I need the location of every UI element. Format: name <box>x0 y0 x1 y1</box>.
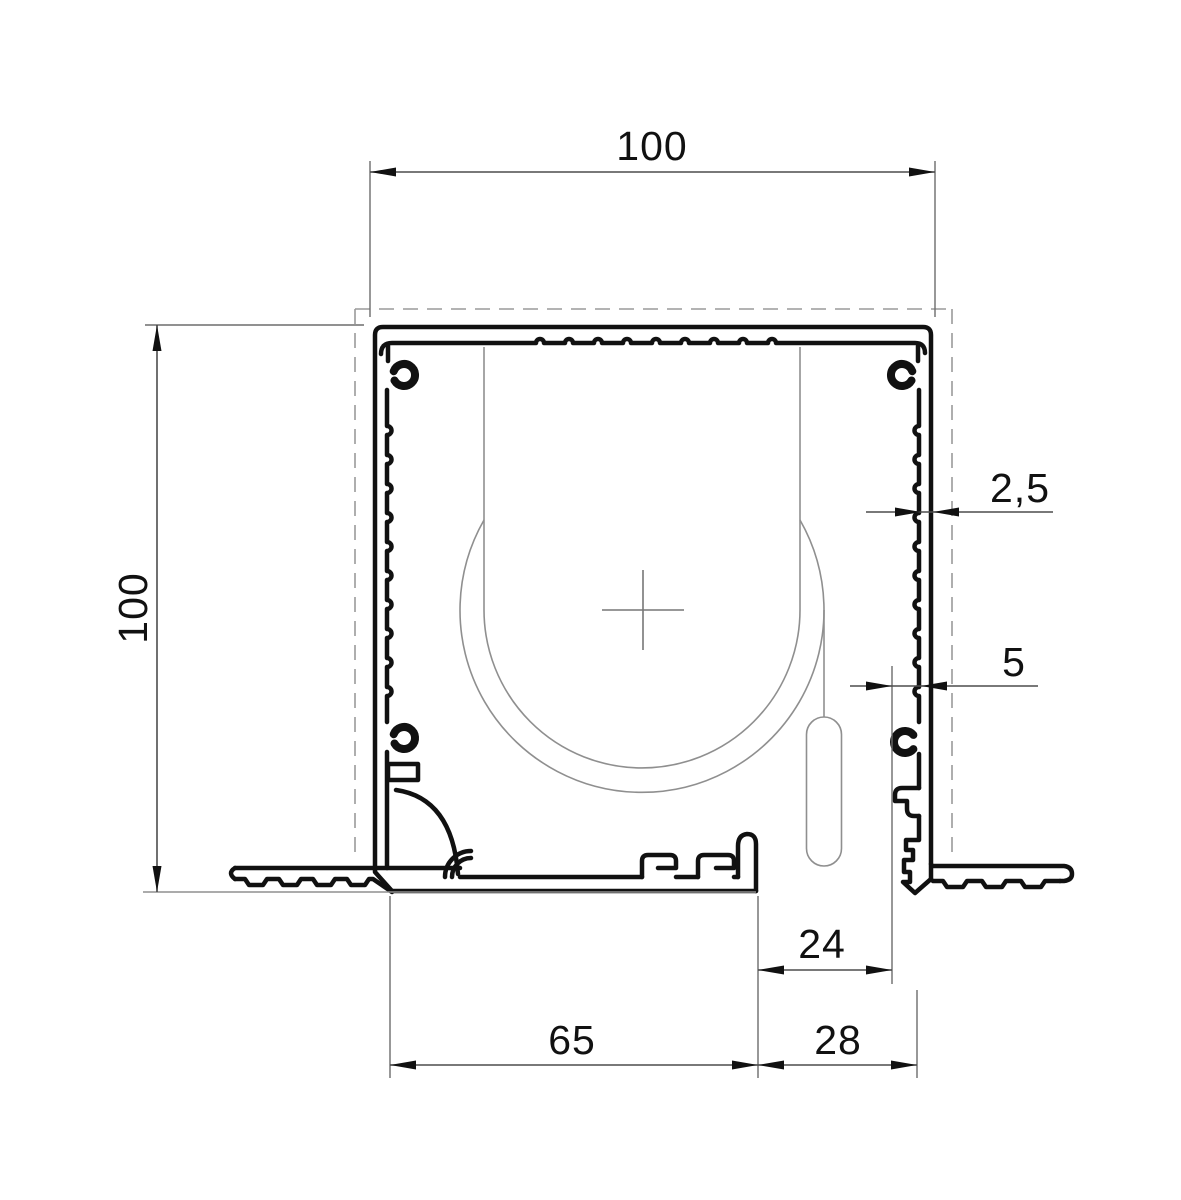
right-foot-zigzag <box>903 816 931 893</box>
right-flange-teeth <box>933 881 1060 887</box>
left-flange-teeth <box>235 879 392 892</box>
roller-tube <box>460 347 824 792</box>
outer-shell <box>375 327 931 868</box>
profile-cross-section-drawing: 100 100 2,5 5 24 65 <box>0 0 1181 1200</box>
fabric-and-hembar <box>807 610 842 866</box>
dimension-label-bottom-right-width: 28 <box>814 1017 862 1063</box>
arrowhead-right <box>891 1061 917 1070</box>
arrowhead-left <box>866 682 892 691</box>
dimension-label-fabric-slot: 5 <box>1002 639 1026 685</box>
technical-drawing-page: 100 100 2,5 5 24 65 <box>0 0 1181 1200</box>
roller-outer-circle <box>460 520 824 792</box>
dimension-label-wall-thickness: 2,5 <box>990 465 1050 511</box>
right-inner-wall-serrated <box>915 390 920 722</box>
center-cross <box>602 570 684 650</box>
right-corner-bracket <box>895 788 919 816</box>
arrowhead-left <box>758 1061 784 1070</box>
screw-boss-bottom-right <box>894 731 913 753</box>
arrowhead-bottom <box>153 866 162 892</box>
dimension-bottom-right-width: 28 <box>758 990 917 1078</box>
arrowhead-left <box>758 966 784 975</box>
roller-inner-circle <box>484 610 800 768</box>
bottom-hook-2 <box>698 855 734 877</box>
bottom-hook-1 <box>642 855 676 877</box>
dimension-label-slot-offset: 24 <box>798 921 846 967</box>
arrowhead-left <box>390 1061 416 1070</box>
dimension-wall-thickness: 2,5 <box>866 465 1053 517</box>
left-inner-wall-serrated <box>387 390 392 722</box>
screw-boss-bottom-left <box>394 727 415 749</box>
dimension-label-bottom-inner-width: 65 <box>548 1017 596 1063</box>
arrowhead-right <box>921 682 947 691</box>
dimension-label-top-width: 100 <box>616 123 687 169</box>
arrowhead-right <box>933 508 959 517</box>
left-corner-slot <box>388 764 418 780</box>
arrowhead-right <box>909 168 935 177</box>
hembar-pill <box>807 717 842 866</box>
dimension-top-width: 100 <box>370 123 935 317</box>
arrowhead-right <box>866 966 892 975</box>
dimension-fabric-slot: 5 <box>850 639 1038 984</box>
screw-boss-top-right <box>891 364 912 386</box>
recess-outline <box>355 309 952 860</box>
arrowhead-left <box>370 168 396 177</box>
arrowhead-right <box>732 1061 758 1070</box>
screw-boss-top-left <box>394 364 415 386</box>
arrowhead-top <box>153 325 162 351</box>
inner-top-wall-serrated <box>381 339 925 354</box>
dimension-bottom-inner-width: 65 <box>390 896 758 1078</box>
bottom-lip <box>738 834 756 891</box>
dimension-label-side-height: 100 <box>110 572 156 643</box>
extension-lines <box>370 161 935 317</box>
